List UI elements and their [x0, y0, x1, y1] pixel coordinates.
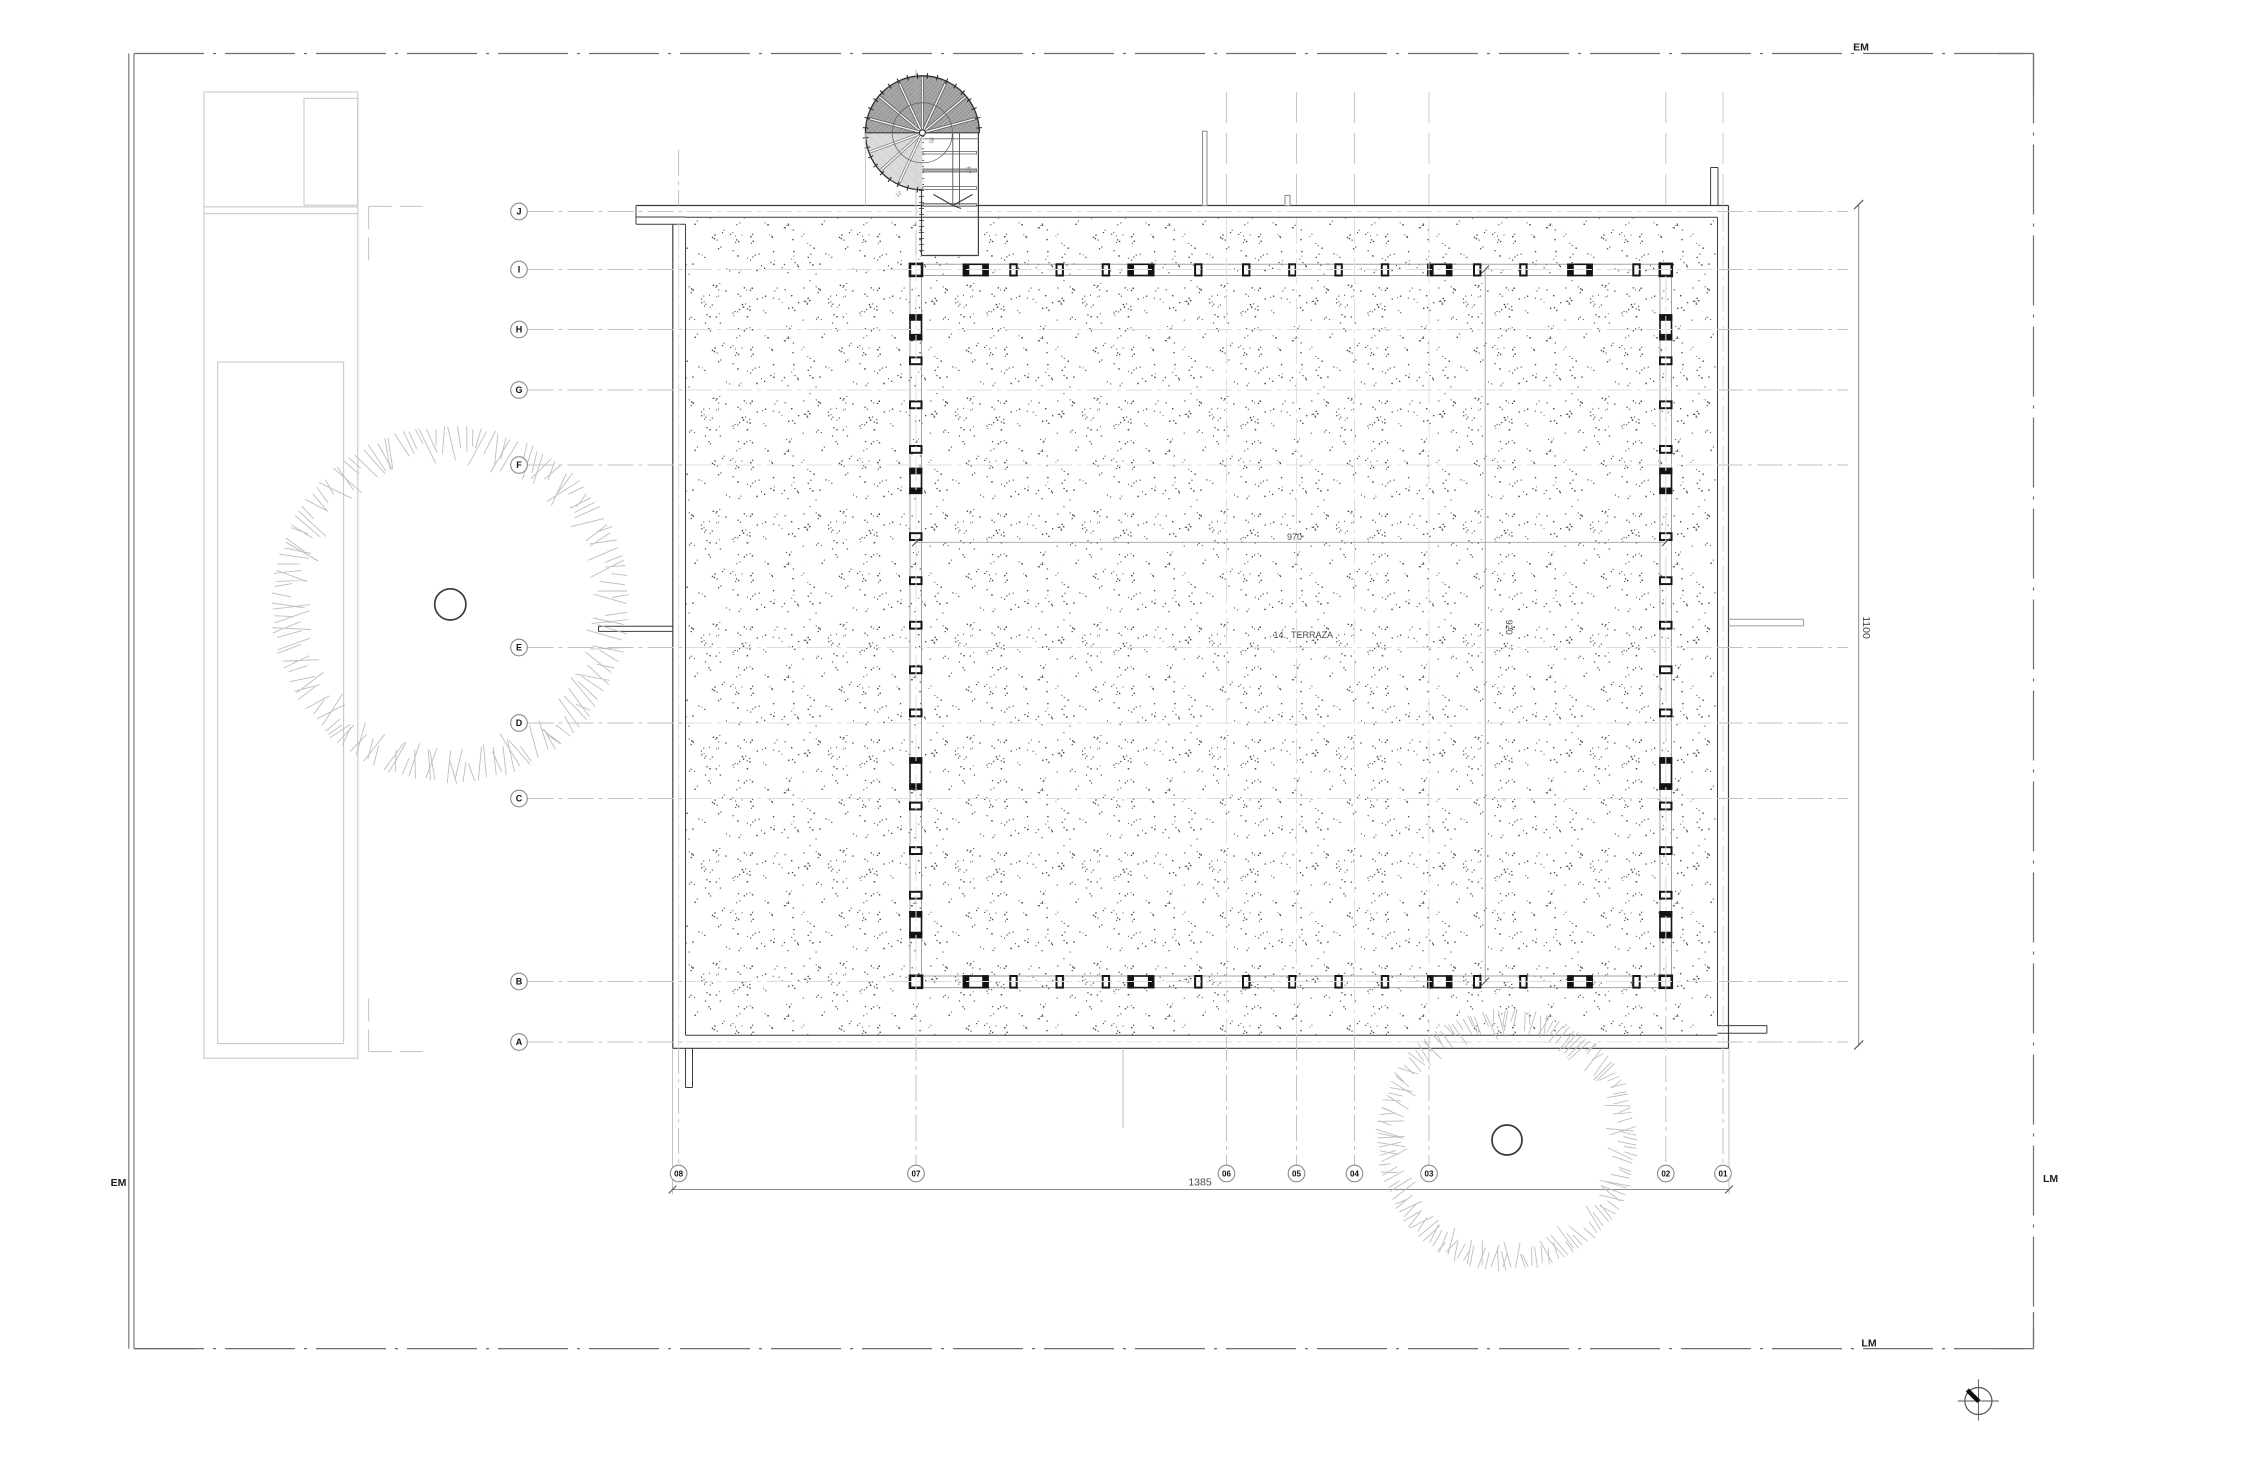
svg-text:920: 920 — [1504, 620, 1514, 635]
svg-text:EM: EM — [111, 1177, 127, 1189]
svg-text:02: 02 — [1661, 1170, 1670, 1179]
svg-text:B: B — [516, 977, 523, 987]
svg-text:04: 04 — [1350, 1170, 1359, 1179]
svg-text:H: H — [516, 325, 523, 335]
svg-text:1100: 1100 — [1860, 616, 1872, 639]
svg-text:03: 03 — [1425, 1170, 1434, 1179]
svg-text:J: J — [516, 207, 521, 217]
svg-text:14. TERRAZA: 14. TERRAZA — [1273, 630, 1333, 640]
svg-text:08: 08 — [674, 1170, 683, 1179]
svg-text:D: D — [516, 718, 523, 728]
svg-text:A: A — [516, 1037, 523, 1047]
svg-text:E: E — [516, 643, 522, 653]
svg-text:970: 970 — [1287, 532, 1302, 542]
svg-text:1385: 1385 — [1188, 1177, 1212, 1189]
svg-text:F: F — [516, 460, 522, 470]
svg-text:LM: LM — [2043, 1173, 2058, 1185]
svg-text:LM: LM — [1861, 1338, 1876, 1350]
svg-text:97: 97 — [965, 166, 972, 174]
svg-text:01: 01 — [1719, 1170, 1728, 1179]
svg-text:06: 06 — [1222, 1170, 1231, 1179]
svg-text:C: C — [516, 794, 523, 804]
svg-text:I: I — [518, 265, 521, 275]
svg-text:07: 07 — [912, 1170, 921, 1179]
svg-text:G: G — [515, 385, 522, 395]
svg-text:EM: EM — [1853, 42, 1869, 54]
svg-text:05: 05 — [1292, 1170, 1301, 1179]
